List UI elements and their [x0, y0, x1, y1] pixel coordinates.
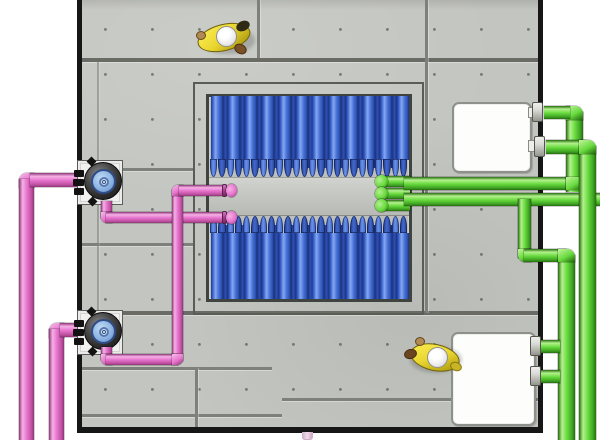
plant-plan-view — [0, 0, 600, 440]
worker-hand — [196, 31, 206, 40]
green-header-pipe-lower — [404, 193, 600, 206]
worker-hand — [415, 337, 425, 346]
green-pipe-wall-flange — [530, 366, 541, 386]
pump-2-coupling — [73, 329, 84, 336]
worker-hard-hat — [427, 347, 448, 368]
green-riser-inner — [558, 255, 575, 440]
pump-2-coupling — [74, 320, 84, 327]
green-pipe-to-box-bottom — [541, 370, 560, 383]
green-pipe-to-box-bottom — [541, 340, 560, 353]
green-header-pipe-upper — [404, 177, 584, 190]
pink-discharge-pipe-to-manifold-lower — [106, 212, 224, 223]
pump-1-coupling — [74, 170, 84, 177]
green-riser-outer — [579, 146, 596, 440]
green-pipe-elbow — [579, 140, 596, 154]
pink-pipe-cap — [226, 211, 237, 224]
green-pipe-wall-flange — [530, 336, 541, 356]
green-pipe-to-box-top — [544, 106, 570, 119]
pump-1-coupling — [73, 179, 84, 186]
pink-riser-pipe — [172, 190, 183, 361]
green-pipe-wall-flange — [532, 102, 543, 122]
pink-discharge-pipe-to-manifold-upper — [179, 185, 224, 196]
green-pipe-elbow — [558, 249, 575, 262]
pump-2-coupling — [74, 338, 84, 345]
pale-pipe-stub — [302, 432, 313, 440]
green-pipe-wall-flange — [534, 136, 545, 157]
pump-2-hub-center — [102, 330, 106, 334]
pink-pipe-cap — [226, 184, 237, 197]
pink-discharge-pipe-horizontal-2 — [106, 354, 178, 365]
green-pipe-cap — [375, 199, 388, 212]
pump-1-hub-center — [102, 180, 106, 184]
pump-1-coupling — [74, 188, 84, 195]
worker-hard-hat — [216, 26, 237, 47]
pump-layer — [0, 0, 600, 440]
